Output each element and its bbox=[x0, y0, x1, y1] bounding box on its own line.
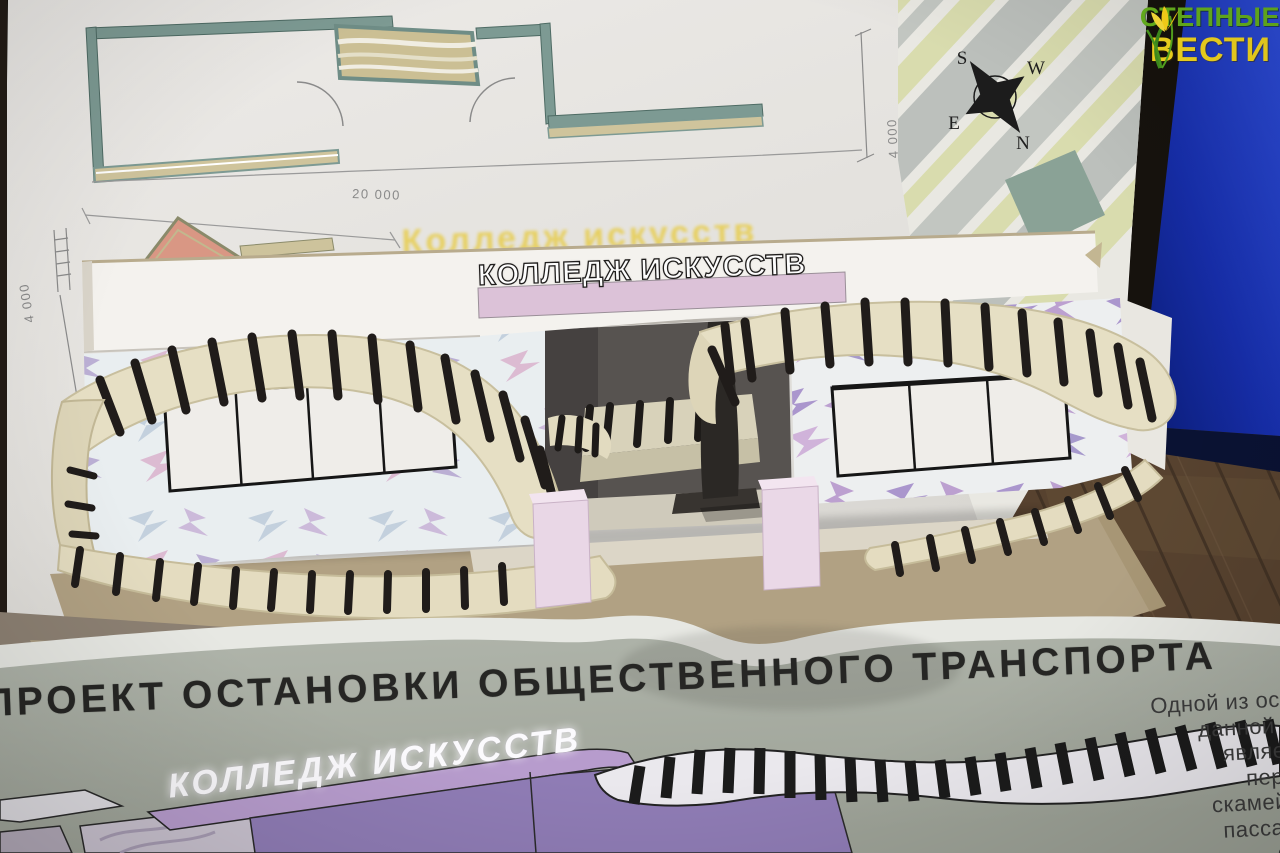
photo-left-edge bbox=[0, 0, 7, 665]
compass-w: W bbox=[1027, 58, 1045, 79]
photo-scene: 20 000 4 000 4 000 bbox=[0, 0, 1280, 853]
compass-s: S bbox=[957, 48, 968, 69]
pillar-right bbox=[758, 476, 820, 590]
compass-e: E bbox=[948, 113, 960, 134]
compass-n: N bbox=[1016, 133, 1030, 154]
pillar-left bbox=[529, 489, 591, 608]
right-windows bbox=[832, 374, 1070, 476]
watermark-logo: СТЕПНЫЕ ВЕСТИ bbox=[1140, 4, 1280, 67]
dim-width-label: 20 000 bbox=[352, 186, 401, 203]
poster-paragraph: Одной из осо данной о являет пере скамей… bbox=[1000, 686, 1280, 853]
